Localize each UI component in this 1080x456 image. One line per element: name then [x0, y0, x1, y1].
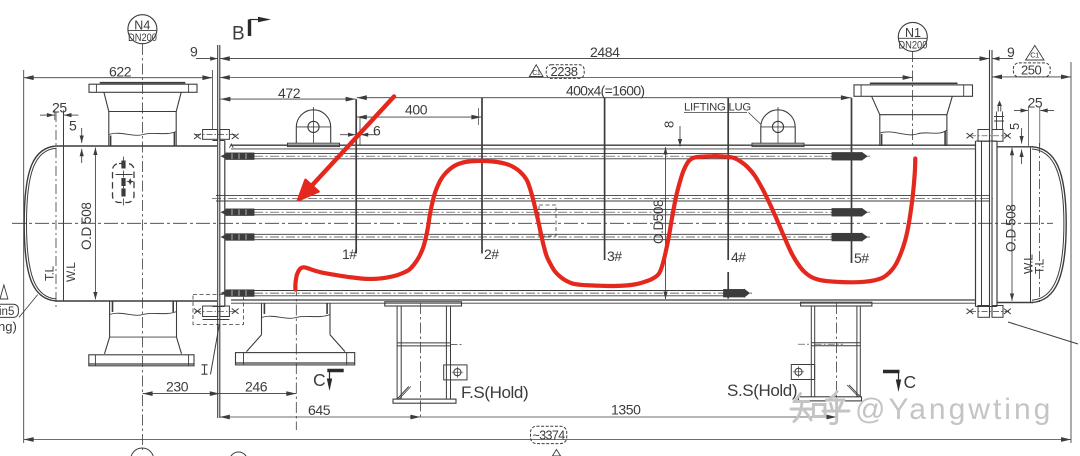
svg-text:230: 230 [166, 379, 189, 395]
svg-text:DN200: DN200 [898, 40, 927, 52]
svg-text:C: C [904, 372, 917, 392]
svg-text:1#: 1# [342, 246, 357, 262]
svg-text:T.L: T.L [43, 265, 57, 281]
svg-text:6: 6 [373, 123, 381, 139]
svg-text:~3374: ~3374 [533, 429, 566, 443]
svg-text:F.S(Hold): F.S(Hold) [461, 383, 528, 402]
svg-text:25: 25 [1028, 95, 1043, 111]
svg-text:1350: 1350 [611, 402, 641, 418]
svg-text:400x4(=1600): 400x4(=1600) [566, 83, 644, 99]
svg-text:400: 400 [405, 102, 428, 118]
svg-text:3#: 3# [607, 248, 622, 264]
svg-text:O.D 508: O.D 508 [79, 203, 94, 250]
svg-text:472: 472 [278, 85, 301, 101]
svg-text:O.D 508: O.D 508 [1004, 205, 1019, 252]
svg-text:@Yangwting: @Yangwting [855, 393, 1053, 426]
svg-text:250: 250 [1021, 63, 1041, 78]
svg-text:C1: C1 [532, 70, 541, 77]
svg-text:9: 9 [1007, 44, 1015, 60]
svg-text:DN200: DN200 [128, 32, 157, 44]
svg-text:5: 5 [1007, 123, 1022, 130]
svg-text:N1: N1 [905, 26, 921, 40]
svg-text:W.L: W.L [64, 262, 78, 282]
svg-text:5: 5 [69, 117, 77, 133]
svg-text:2238: 2238 [551, 64, 578, 79]
svg-text:246: 246 [245, 379, 268, 395]
svg-text:8: 8 [662, 121, 677, 128]
svg-text:B: B [232, 24, 245, 45]
svg-text:2#: 2# [484, 246, 499, 262]
svg-text:9: 9 [190, 44, 198, 60]
svg-text:622: 622 [109, 64, 132, 80]
svg-text:25: 25 [52, 100, 67, 116]
svg-text:4#: 4# [731, 249, 746, 265]
svg-text:2484: 2484 [590, 44, 620, 60]
svg-text:O.D508: O.D508 [651, 200, 666, 244]
svg-text:T.L: T.L [1033, 258, 1047, 274]
svg-text:5#: 5# [854, 250, 869, 266]
svg-text:LIFTING LUG: LIFTING LUG [684, 102, 751, 114]
svg-text:S.S(Hold): S.S(Hold) [727, 381, 797, 400]
svg-text:C1: C1 [1030, 51, 1039, 60]
svg-text:C: C [313, 370, 326, 390]
svg-text:ng): ng) [0, 319, 17, 334]
svg-text:in5: in5 [0, 306, 14, 318]
svg-text:645: 645 [308, 402, 331, 418]
svg-text:N4: N4 [134, 18, 150, 32]
